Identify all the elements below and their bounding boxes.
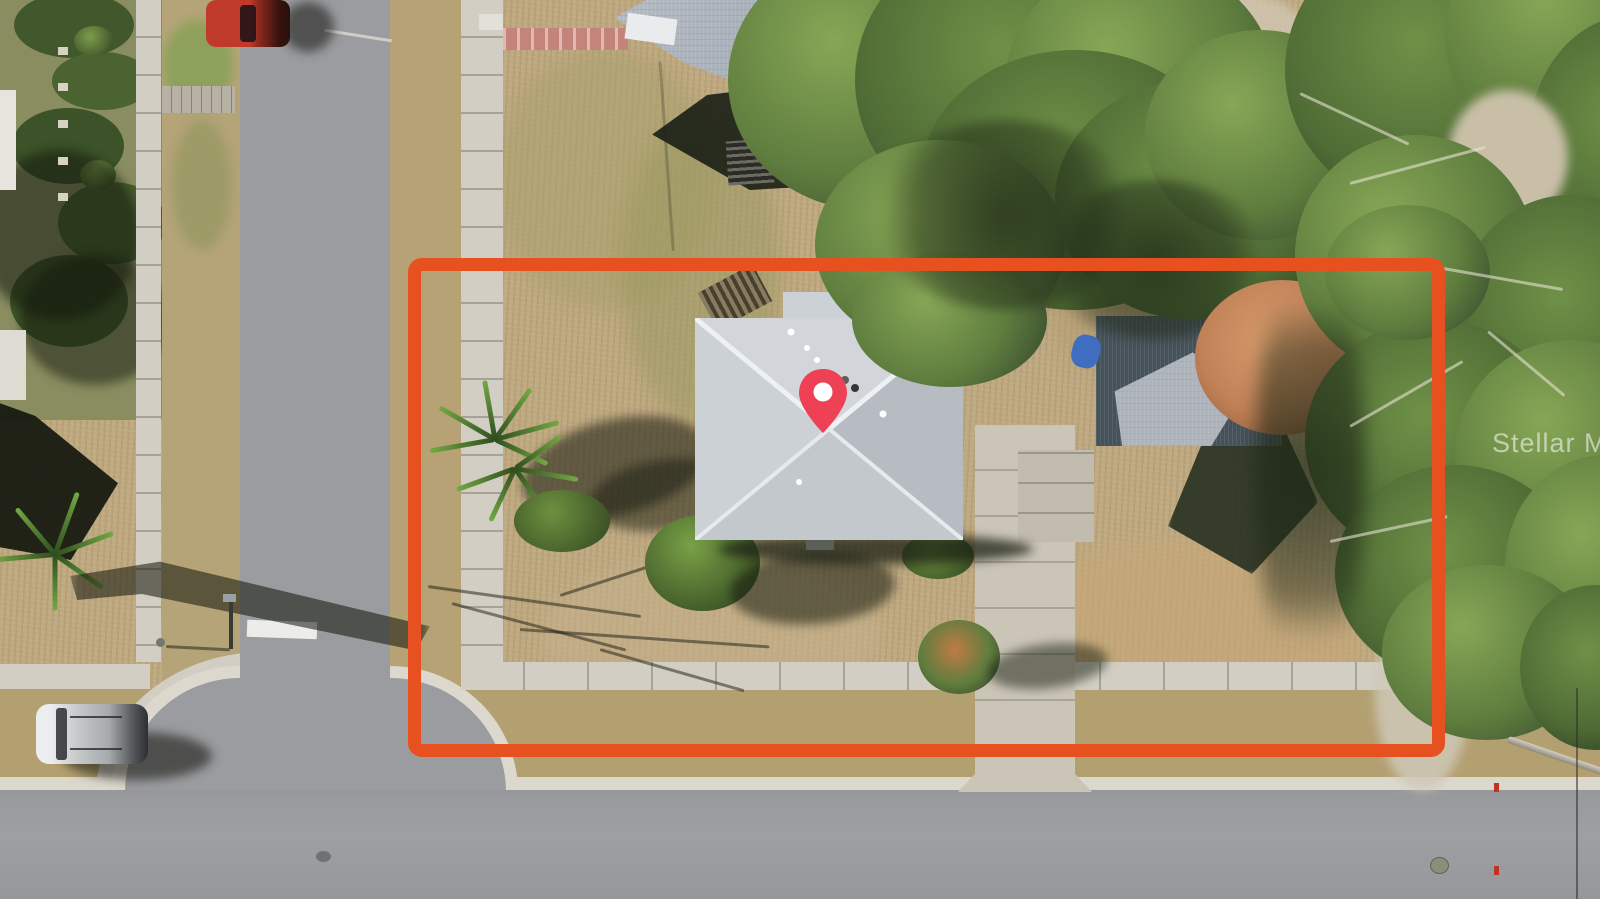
main-street [0, 790, 1600, 899]
property-boundary-overlay [408, 258, 1445, 757]
round-bush [74, 26, 114, 56]
manhole [1430, 857, 1449, 874]
curb [0, 777, 128, 791]
suv-windshield [56, 708, 67, 760]
paver-crossing [161, 86, 235, 113]
side-street [240, 0, 390, 795]
paver-dot [58, 83, 68, 91]
paver-dot [58, 47, 68, 55]
survey-flag [1494, 783, 1499, 792]
verge-green-patch [172, 120, 232, 250]
paver-dot [58, 157, 68, 165]
walkway-stub [479, 14, 503, 30]
manhole [316, 851, 331, 862]
neighbor-house-wall [0, 90, 16, 190]
suv-roof-rail [70, 716, 122, 718]
utility-marker [156, 638, 165, 647]
neighbor-house-wall [0, 330, 26, 400]
west-sidewalk-bottom [0, 664, 150, 689]
aerial-photo: Stellar MLS [0, 0, 1600, 899]
silver-suv [36, 704, 148, 764]
driveway-apron [958, 772, 1092, 792]
survey-flag [1494, 866, 1499, 875]
street-sign [223, 594, 236, 602]
signpost [229, 597, 233, 649]
paver-dot [58, 120, 68, 128]
watermark-text: Stellar MLS [1492, 428, 1600, 459]
location-pin-icon [797, 368, 849, 434]
pink-paver-walkway [503, 28, 628, 50]
red-car-windshield [240, 5, 256, 42]
power-line [1576, 688, 1578, 899]
suv-roof-rail [70, 748, 122, 750]
paver-dot [58, 193, 68, 201]
